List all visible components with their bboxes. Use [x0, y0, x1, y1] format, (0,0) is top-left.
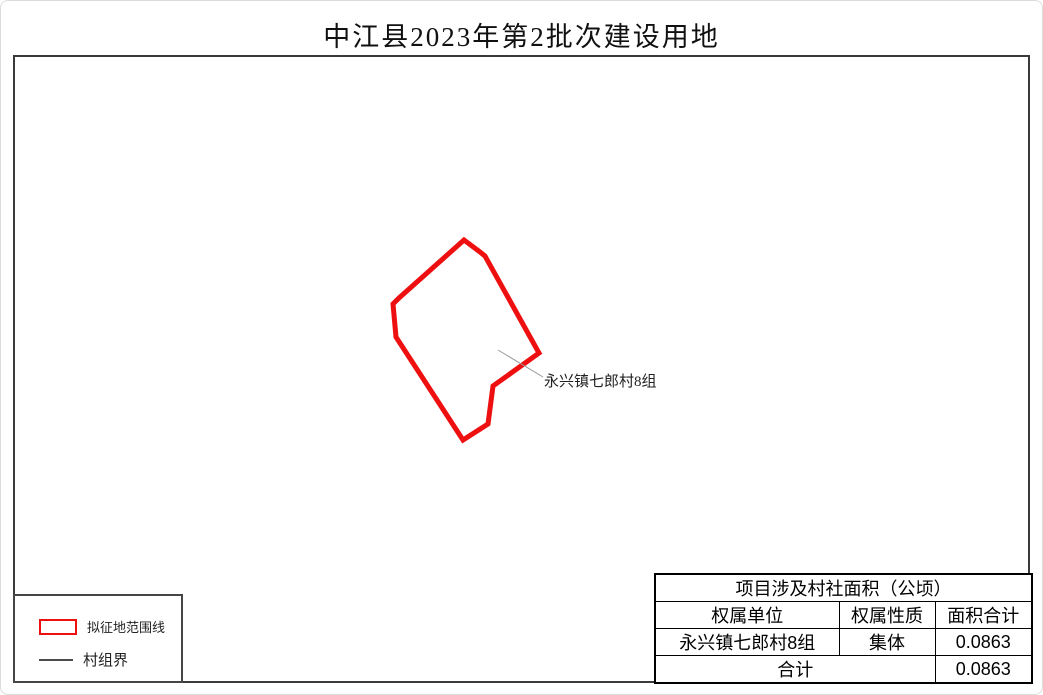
red-rectangle-swatch-icon	[39, 619, 77, 635]
area-summary-table: 项目涉及村社面积（公顷） 权属单位 权属性质 面积合计 永兴镇七郎村8组 集体 …	[654, 573, 1033, 684]
header-owner-unit: 权属单位	[655, 602, 839, 629]
gray-line-swatch-icon	[39, 659, 73, 661]
cell-total-label: 合计	[655, 656, 935, 684]
legend-item-label: 村组界	[83, 649, 128, 670]
parcel-boundary-polygon	[393, 240, 539, 440]
table-title-cell: 项目涉及村社面积（公顷）	[655, 574, 1032, 602]
cell-total-value: 0.0863	[935, 656, 1032, 684]
cell-owner-unit: 永兴镇七郎村8组	[655, 629, 839, 656]
cell-area: 0.0863	[935, 629, 1032, 656]
table-header-row: 权属单位 权属性质 面积合计	[655, 602, 1032, 629]
legend-item-acquisition-boundary: 拟征地范围线	[39, 617, 165, 636]
legend-box: 拟征地范围线 村组界	[13, 594, 183, 683]
map-frame: 永兴镇七郎村8组 拟征地范围线 村组界 项目涉及村社面积（公顷）	[13, 55, 1030, 683]
legend-item-label: 拟征地范围线	[87, 617, 165, 636]
parcel-label: 永兴镇七郎村8组	[544, 370, 657, 391]
land-acquisition-map-page: 中江县2023年第2批次建设用地 永兴镇七郎村8组 拟征地范围线 村组界	[0, 0, 1043, 695]
legend-item-village-boundary: 村组界	[39, 649, 128, 670]
table-title-row: 项目涉及村社面积（公顷）	[655, 574, 1032, 602]
cell-ownership-type: 集体	[839, 629, 935, 656]
page-title: 中江县2023年第2批次建设用地	[1, 15, 1042, 54]
parcel-leader-line	[498, 350, 543, 377]
header-area-total: 面积合计	[935, 602, 1032, 629]
table-row: 永兴镇七郎村8组 集体 0.0863	[655, 629, 1032, 656]
header-ownership-type: 权属性质	[839, 602, 935, 629]
table-total-row: 合计 0.0863	[655, 656, 1032, 684]
